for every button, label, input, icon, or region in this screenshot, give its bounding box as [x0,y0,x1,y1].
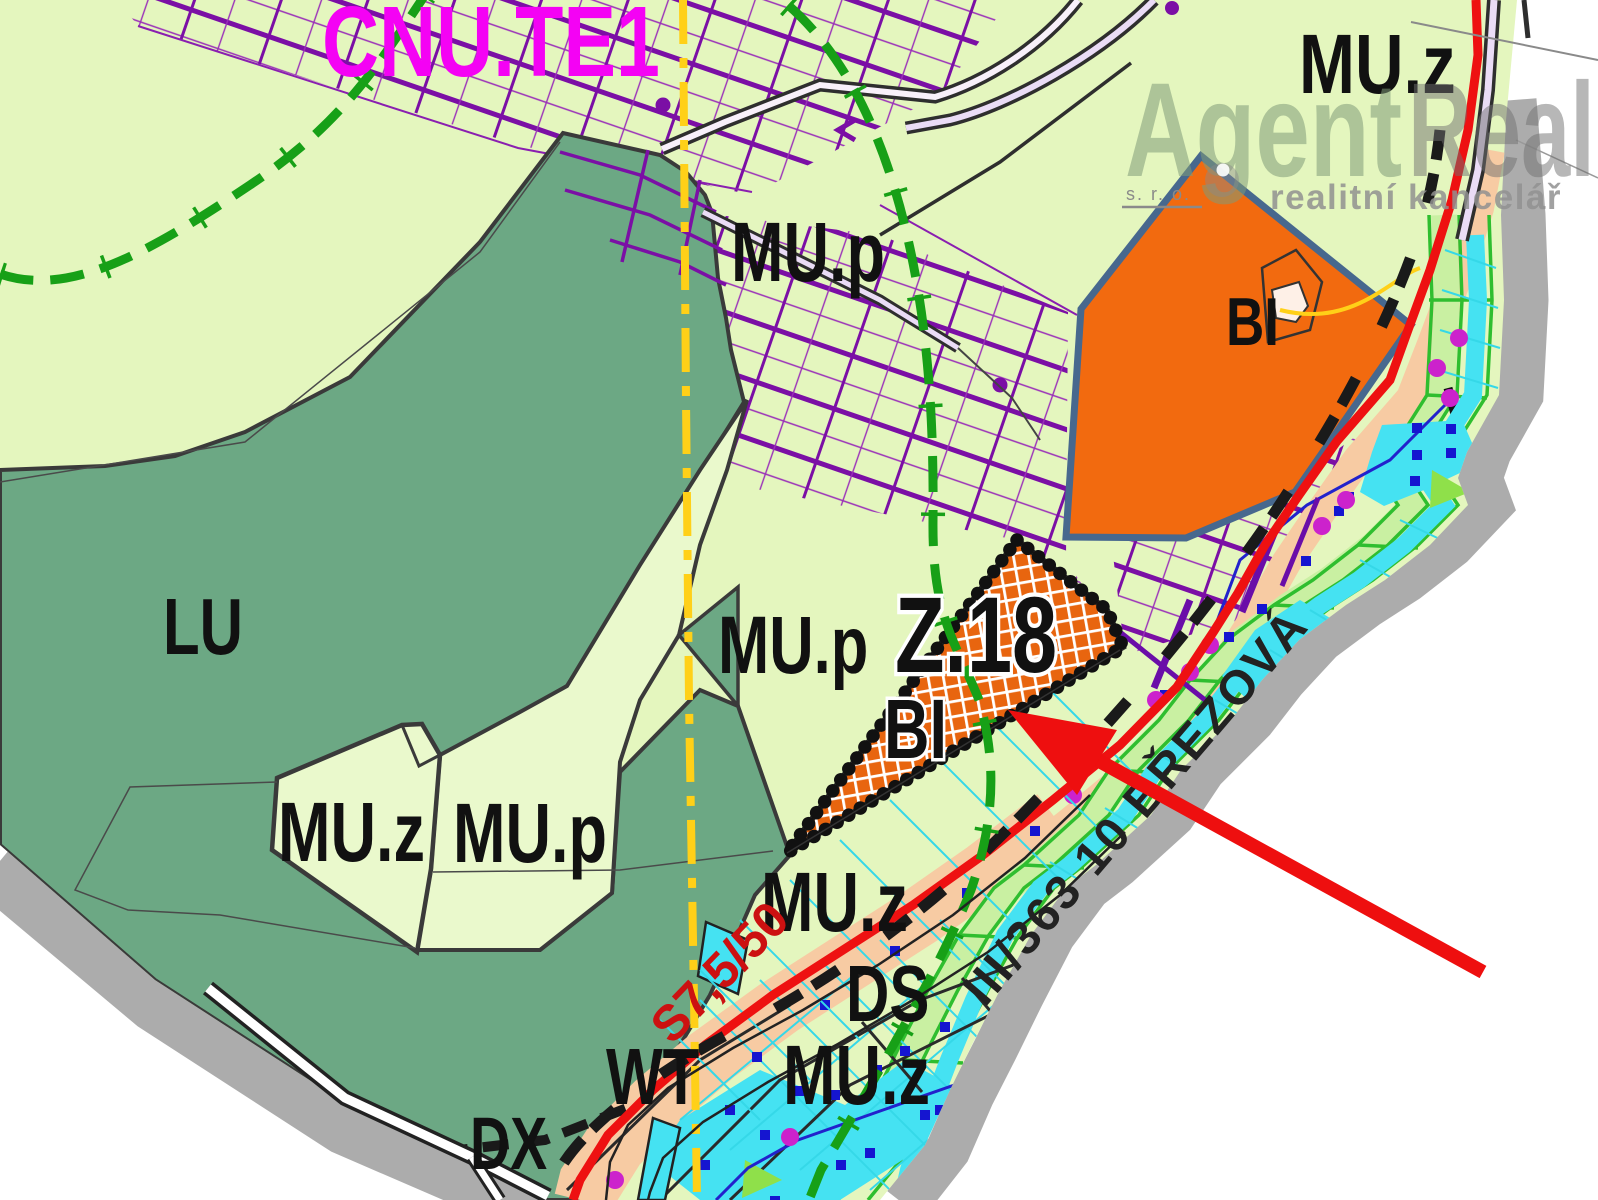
svg-text:MU.z: MU.z [278,785,425,879]
svg-text:Z.18: Z.18 [895,576,1057,696]
svg-text:BI: BI [884,682,947,776]
svg-text:MU.z: MU.z [783,1028,930,1122]
svg-text:MU.p: MU.p [718,599,868,691]
svg-text:DS: DS [846,949,929,1038]
svg-text:MU.p: MU.p [731,205,885,299]
svg-text:CNU.TE1: CNU.TE1 [322,0,660,98]
svg-text:s. r. o.: s. r. o. [1126,184,1191,204]
svg-text:realitní kancelář: realitní kancelář [1270,178,1562,217]
svg-text:BI: BI [1226,284,1279,360]
svg-text:MU.p: MU.p [453,786,607,880]
svg-text:LU: LU [163,582,243,671]
svg-text:DX: DX [470,1102,547,1185]
